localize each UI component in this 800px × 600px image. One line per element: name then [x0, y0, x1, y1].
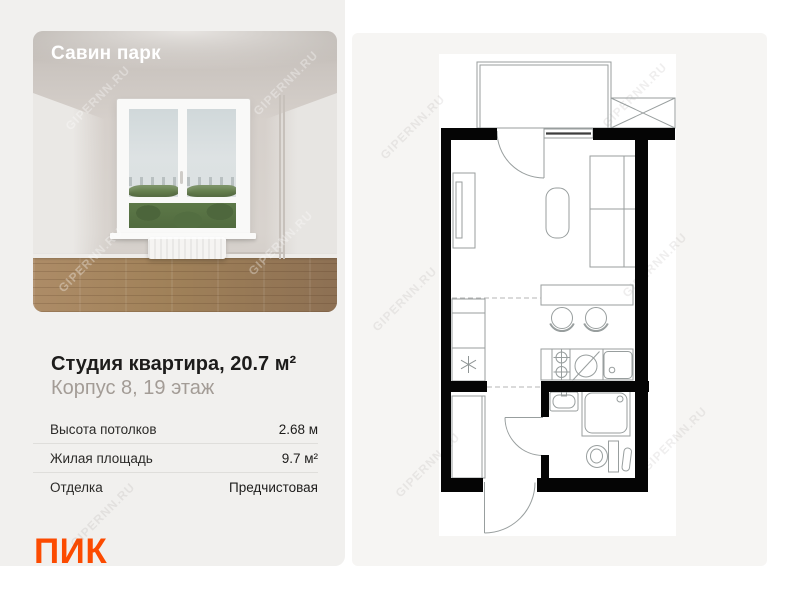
apartment-photo[interactable]: GIPERNN.RU GIPERNN.RU GIPERNN.RU GIPERNN…	[33, 31, 337, 312]
photo-window	[117, 99, 250, 235]
window-pane-right	[187, 109, 236, 197]
listing-title: Студия квартира, 20.7 м²	[51, 353, 296, 376]
spec-label: Высота потолков	[33, 422, 157, 437]
window-pane-left	[129, 109, 178, 197]
spec-row-living-area: Жилая площадь 9.7 м²	[33, 444, 318, 473]
spec-label: Отделка	[33, 480, 103, 495]
spec-value: 2.68 м	[279, 422, 318, 437]
pipe	[279, 95, 281, 259]
radiator	[148, 237, 226, 259]
pik-logo: ПИК	[34, 532, 107, 572]
specs-table: Высота потолков 2.68 м Жилая площадь 9.7…	[33, 415, 318, 501]
treeline	[187, 185, 236, 197]
listing-subtitle: Корпус 8, 19 этаж	[51, 377, 214, 400]
photo-wood-floor	[33, 258, 337, 312]
photo-right-wall	[265, 93, 337, 258]
photo-left-wall	[33, 93, 105, 258]
spec-row-finishing: Отделка Предчистовая	[33, 473, 318, 501]
pipe	[283, 95, 285, 259]
spec-value: 9.7 м²	[282, 451, 318, 466]
project-title: Савин парк	[51, 43, 161, 65]
floor-plan-background	[439, 54, 676, 536]
pipe	[226, 252, 283, 254]
window-handle	[180, 171, 183, 184]
spec-value: Предчистовая	[229, 480, 318, 495]
spec-label: Жилая площадь	[33, 451, 153, 466]
treeline	[129, 185, 178, 197]
window-pane-lower	[129, 203, 236, 228]
spec-row-ceiling-height: Высота потолков 2.68 м	[33, 415, 318, 444]
page: GIPERNN.RU GIPERNN.RU GIPERNN.RU GIPERNN…	[0, 0, 800, 600]
